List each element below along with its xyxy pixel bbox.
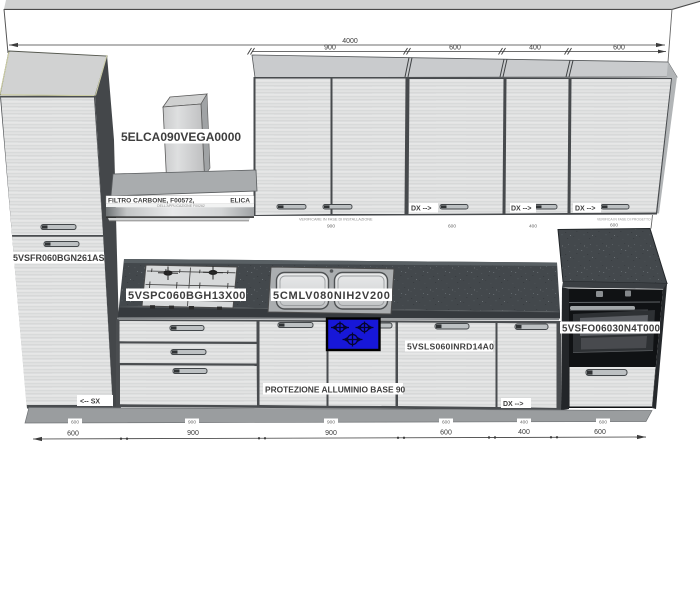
svg-text:400: 400: [518, 429, 530, 436]
svg-text:600: 600: [613, 45, 625, 52]
svg-text:600: 600: [67, 431, 79, 438]
svg-text:900: 900: [187, 430, 199, 437]
svg-text:5VSFO06030N4T000: 5VSFO06030N4T000: [562, 323, 661, 334]
svg-text:600: 600: [71, 420, 79, 426]
svg-text:ELICA: ELICA: [230, 197, 250, 204]
svg-text:PROTEZIONE ALLUMINIO BASE 90: PROTEZIONE ALLUMINIO BASE 90: [265, 384, 406, 394]
svg-text:600: 600: [440, 429, 452, 436]
svg-text:600: 600: [448, 224, 456, 230]
svg-text:900: 900: [327, 420, 335, 426]
svg-text:400: 400: [529, 45, 541, 52]
svg-text:VERIFICA IN FASE DI PROGETTO: VERIFICA IN FASE DI PROGETTO: [597, 218, 651, 222]
svg-text:DX -->: DX -->: [575, 206, 595, 213]
svg-text:400: 400: [520, 420, 528, 426]
svg-text:600: 600: [442, 420, 450, 426]
svg-text:5VSPC060BGH13X00: 5VSPC060BGH13X00: [128, 290, 246, 302]
svg-text:4000: 4000: [342, 38, 358, 45]
svg-text:DX -->: DX -->: [511, 206, 531, 213]
svg-text:600: 600: [594, 429, 606, 436]
svg-text:400: 400: [529, 224, 537, 230]
svg-text:<-- SX: <-- SX: [80, 399, 100, 406]
svg-text:5VSLS060INRD14A0: 5VSLS060INRD14A0: [407, 342, 494, 352]
svg-text:900: 900: [327, 224, 335, 230]
svg-text:600: 600: [449, 45, 461, 52]
svg-text:VERIFICARE IN FASE DI INSTALLA: VERIFICARE IN FASE DI INSTALLAZIONE: [299, 218, 373, 222]
svg-text:900: 900: [325, 430, 337, 437]
svg-text:DX -->: DX -->: [503, 401, 523, 408]
svg-text:600: 600: [610, 223, 618, 229]
svg-text:5VSFR060BGN261AS: 5VSFR060BGN261AS: [13, 253, 105, 263]
svg-text:600: 600: [599, 420, 607, 426]
svg-text:5CMLV080NIH2V200: 5CMLV080NIH2V200: [273, 290, 391, 302]
svg-text:5ELCA090VEGA0000: 5ELCA090VEGA0000: [121, 130, 241, 144]
svg-text:DX -->: DX -->: [411, 206, 431, 213]
svg-text:900: 900: [324, 45, 336, 52]
svg-text:900: 900: [188, 420, 196, 426]
